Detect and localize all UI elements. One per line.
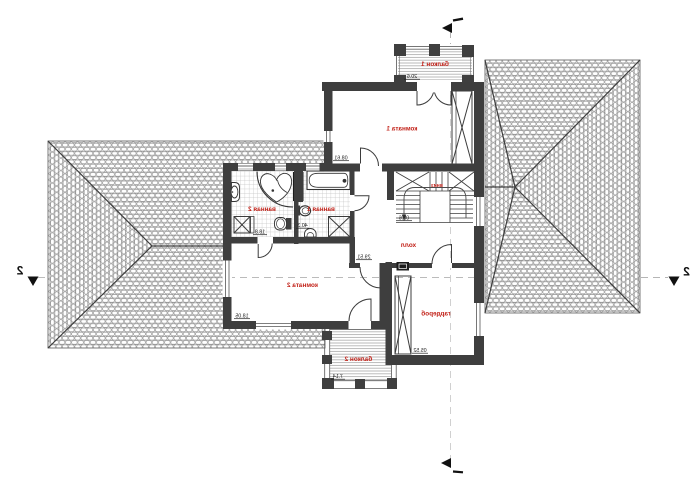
svg-text:балкон 2: балкон 2 [344, 355, 372, 363]
svg-text:гардероб: гардероб [421, 310, 450, 318]
svg-text:комната 2: комната 2 [287, 282, 319, 289]
svg-text:холл: холл [401, 242, 416, 249]
svg-text:балкон 1: балкон 1 [421, 60, 449, 68]
svg-text:2: 2 [16, 264, 23, 278]
svg-text:ванная 1: ванная 1 [307, 206, 335, 213]
svg-text:2: 2 [683, 265, 690, 279]
svg-text:вниз: вниз [431, 183, 443, 189]
svg-text:ванная 2: ванная 2 [248, 206, 276, 213]
svg-text:комната 1: комната 1 [386, 126, 418, 133]
